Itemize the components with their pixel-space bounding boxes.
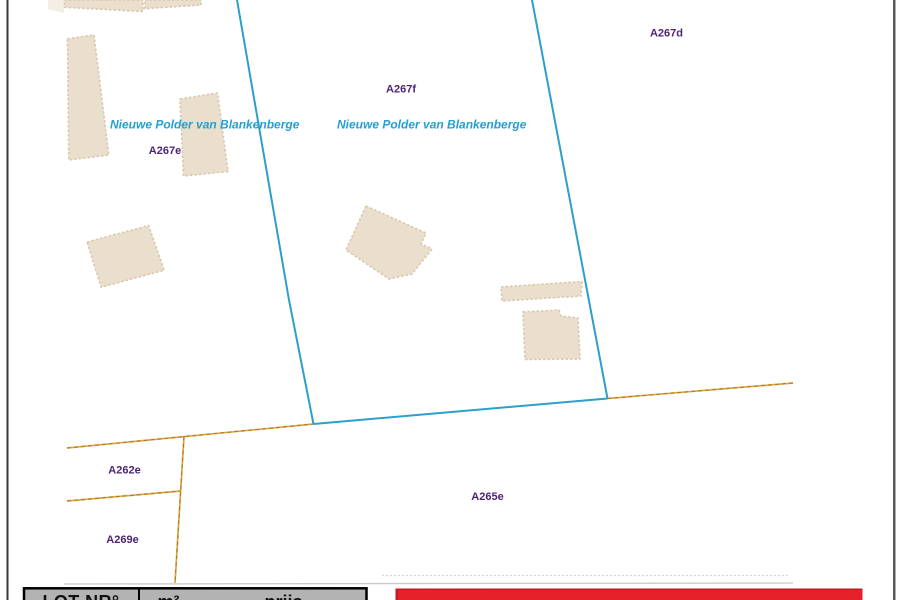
svg-text:A265e: A265e [471, 491, 503, 503]
svg-text:prijs: prijs [264, 592, 302, 600]
svg-text:A262e: A262e [108, 465, 140, 477]
svg-text:A267d: A267d [650, 28, 683, 40]
svg-text:A267e: A267e [149, 145, 181, 157]
svg-text:A269e: A269e [106, 534, 138, 546]
svg-text:A267f: A267f [386, 84, 416, 96]
svg-text:m²: m² [158, 592, 180, 600]
svg-text:Nieuwe Polder van Blankenberge: Nieuwe Polder van Blankenberge [110, 118, 300, 132]
svg-text:Nieuwe Polder van Blankenberge: Nieuwe Polder van Blankenberge [337, 118, 527, 132]
svg-text:LOT NR°: LOT NR° [43, 592, 120, 600]
